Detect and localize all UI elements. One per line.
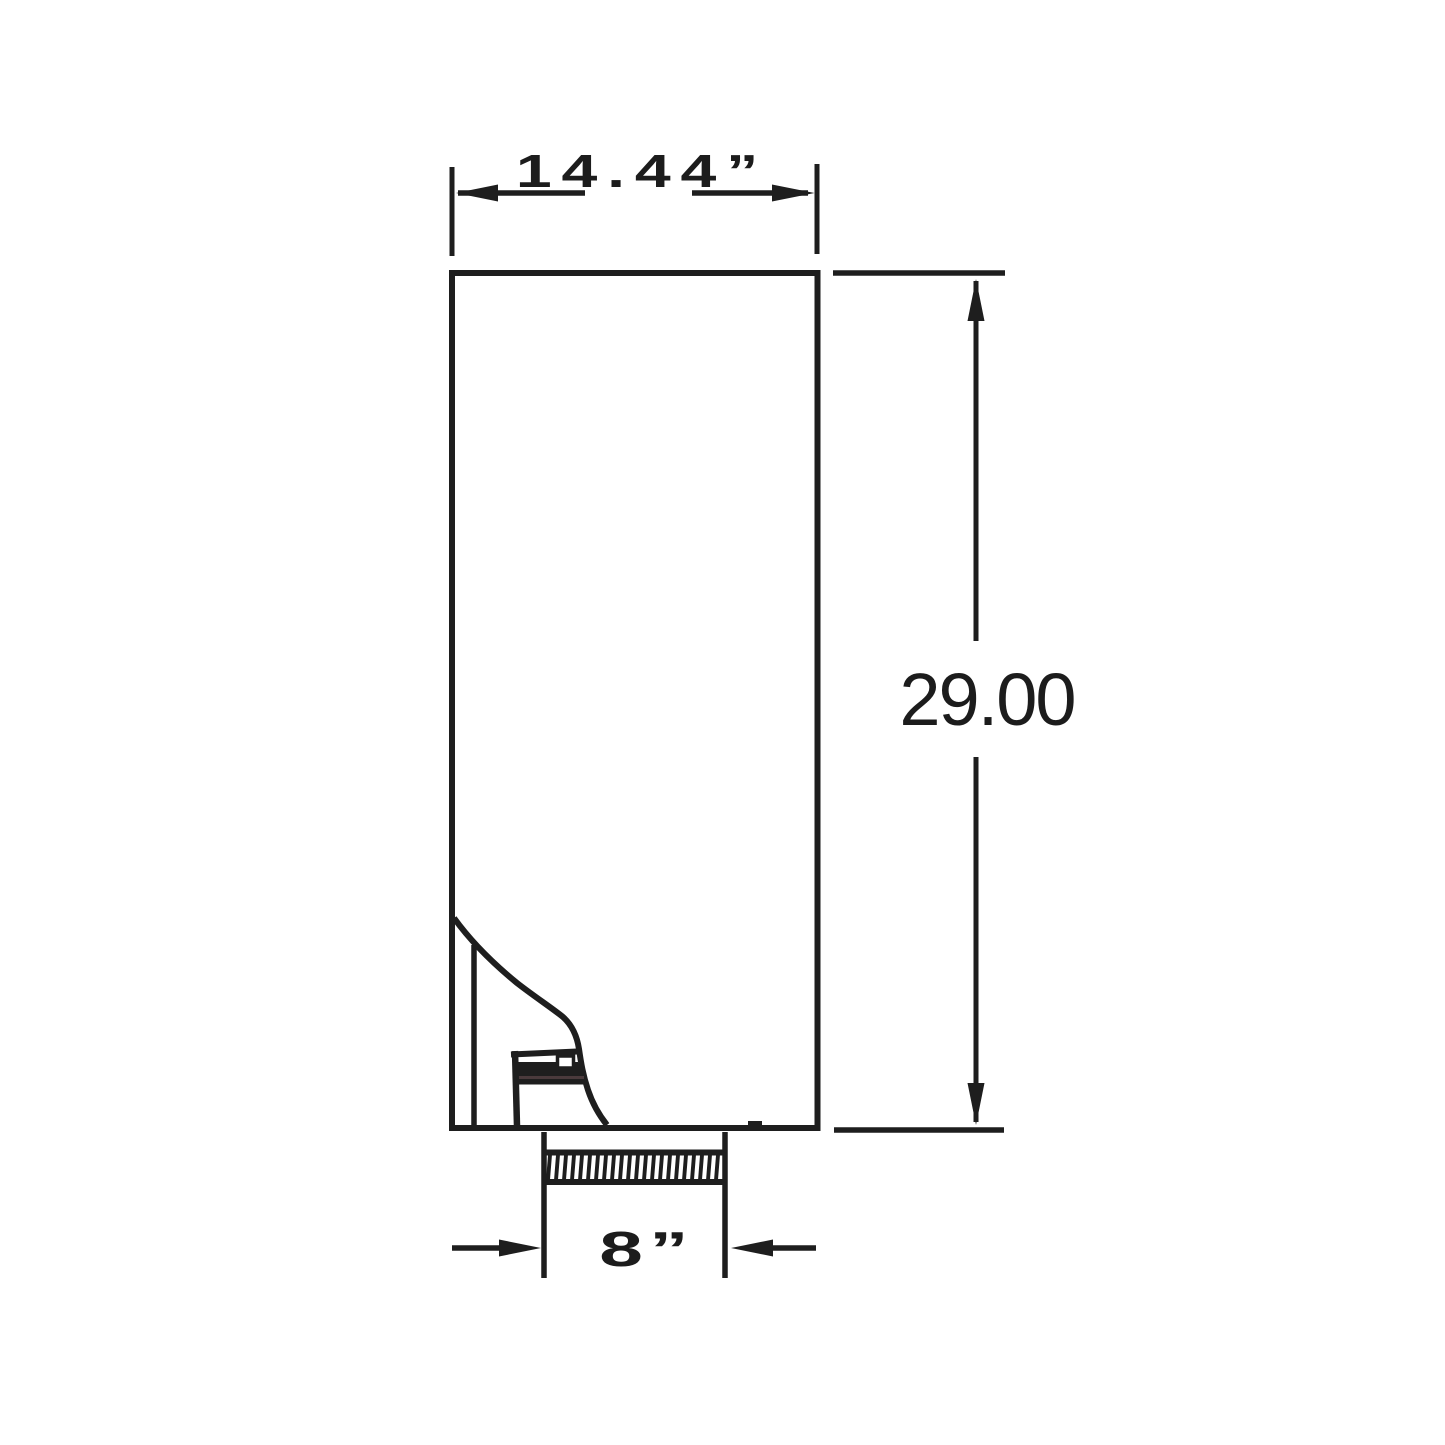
svg-text:14.44”: 14.44” — [516, 145, 768, 197]
svg-text:8”: 8” — [599, 1222, 695, 1277]
svg-text:29.00: 29.00 — [899, 658, 1074, 741]
